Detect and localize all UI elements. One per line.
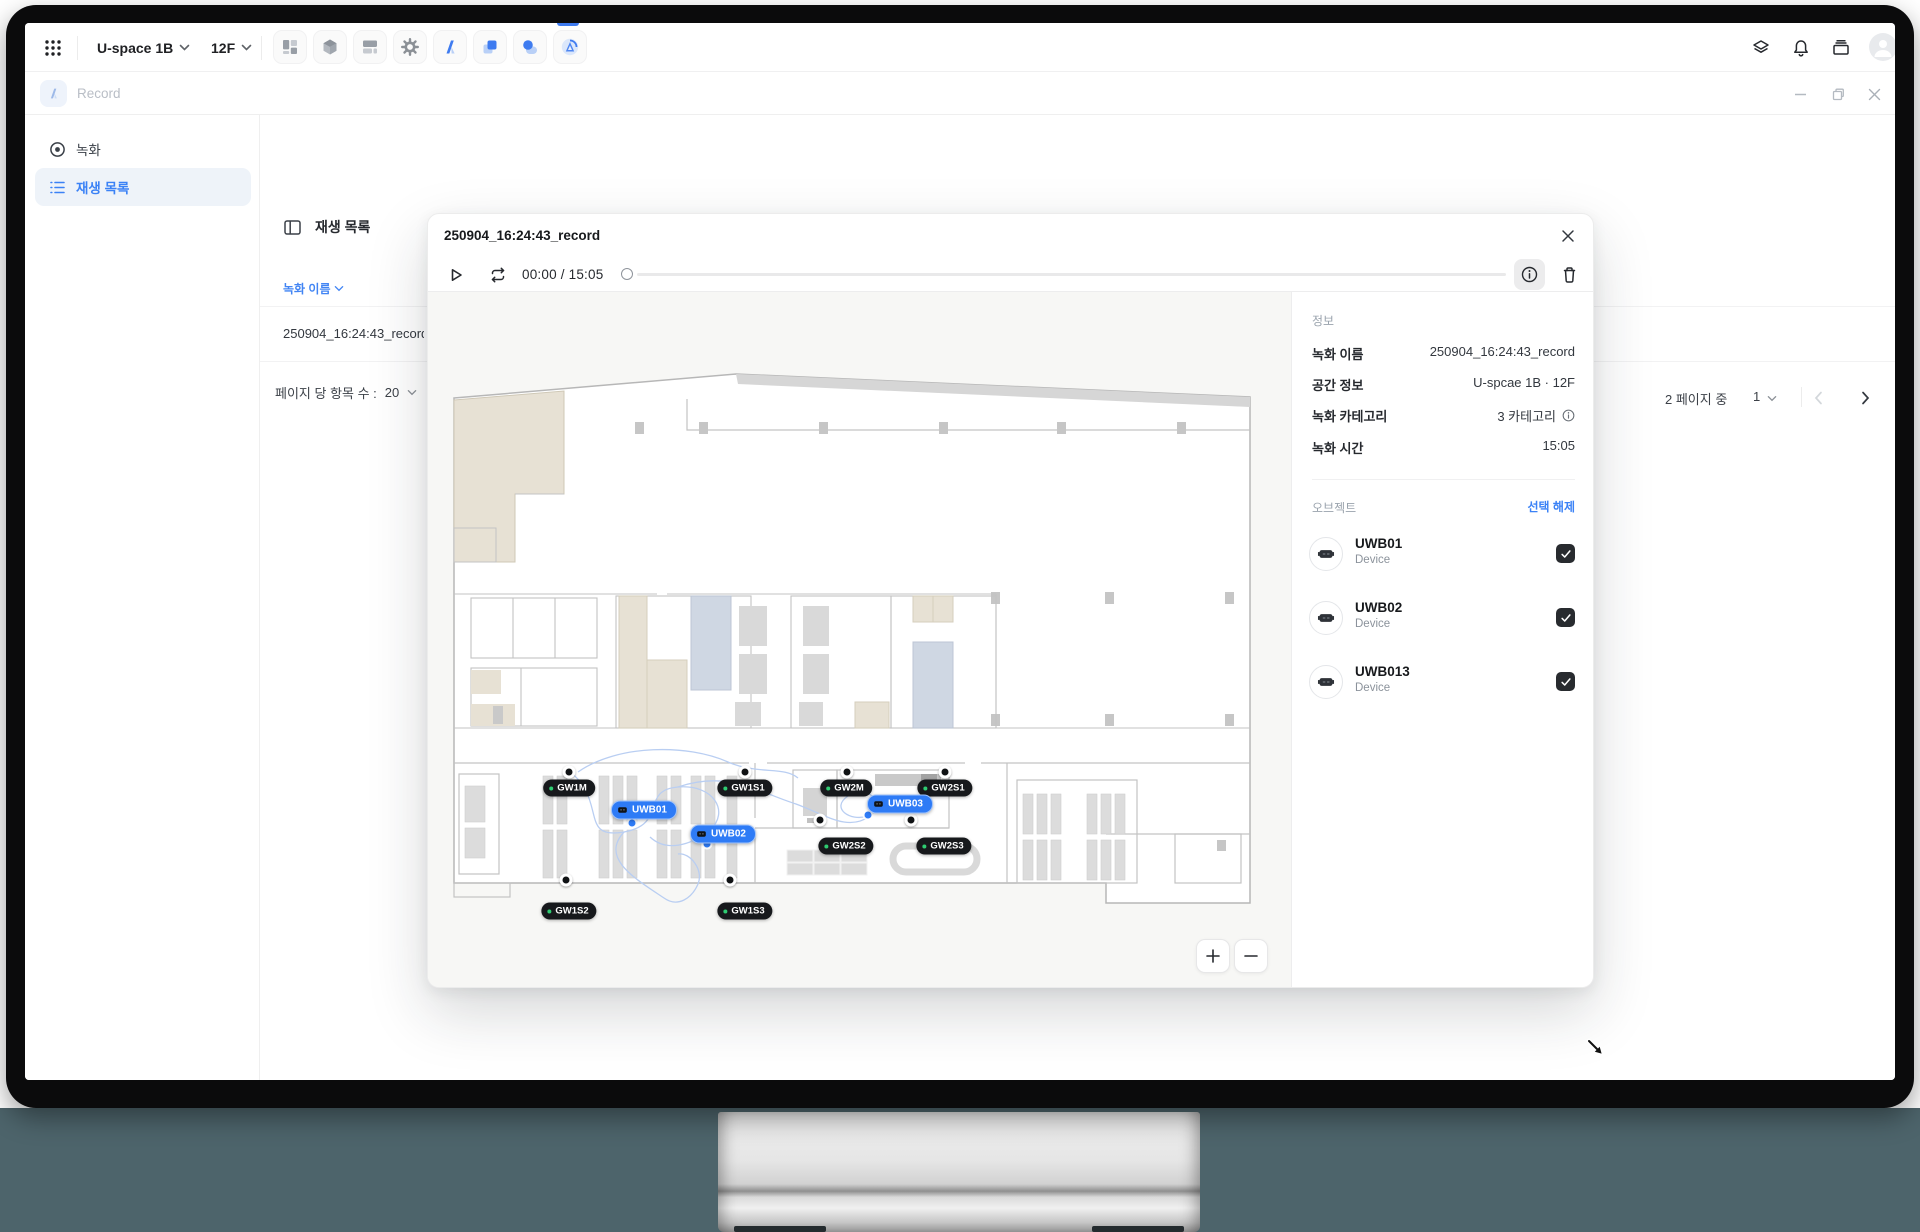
monitor-stand (718, 1112, 1200, 1232)
sidebar-item-record[interactable]: 녹화 (35, 130, 251, 168)
minimize-button[interactable] (1787, 81, 1813, 107)
gateway-name: GW2S1 (931, 783, 964, 794)
info-label: 녹화 이름 (1312, 344, 1363, 363)
user-avatar[interactable] (1869, 33, 1895, 61)
gateway-name: GW2M (834, 783, 864, 794)
uwb-device-icon (1315, 607, 1337, 629)
info-value: 3 카테고리 (1497, 406, 1575, 425)
tag-position-dot (865, 812, 872, 819)
divider (77, 36, 78, 60)
status-dot (824, 844, 828, 848)
anchor-dot (560, 874, 573, 887)
check-icon (1560, 612, 1572, 624)
a-logo-icon (46, 86, 61, 101)
uwb-tag-label[interactable]: UWB01 (611, 801, 677, 820)
panels-tool-button[interactable] (353, 30, 387, 64)
objects-section-label: 오브젝트 (1312, 499, 1356, 516)
sidebar-item-playlist[interactable]: 재생 목록 (35, 168, 251, 206)
gateway-name: GW2S2 (832, 841, 865, 852)
restore-button[interactable] (1825, 81, 1851, 107)
tag-name: UWB02 (711, 829, 746, 840)
repeat-icon (489, 267, 507, 283)
close-icon (1868, 88, 1881, 101)
bell-icon (1791, 38, 1811, 58)
status-dot (547, 909, 551, 913)
device-name: UWB02 (1355, 600, 1402, 615)
monitor-bezel: U-space 1B 12F (6, 5, 1914, 1108)
space-name: U-space 1B (97, 40, 173, 56)
clear-selection-link[interactable]: 선택 해제 (1528, 498, 1576, 515)
gear-icon (400, 37, 420, 57)
panel-toggle-icon[interactable] (283, 218, 302, 237)
device-row[interactable]: UWB02Device (1309, 599, 1578, 637)
device-avatar (1309, 537, 1343, 571)
gateway-label[interactable]: GW1S3 (717, 903, 772, 920)
chevron-right-icon (1861, 391, 1870, 405)
gateway-name: GW2S3 (930, 841, 963, 852)
minimize-icon (1794, 88, 1807, 101)
tag-name: UWB03 (888, 799, 923, 810)
anchor-dot (905, 814, 918, 827)
info-row: 녹화 카테고리3 카테고리 (1312, 406, 1575, 424)
anchor-dot (739, 766, 752, 779)
divider (1312, 479, 1575, 480)
panels-icon (360, 37, 380, 57)
trash-icon (1561, 266, 1578, 284)
tag-name: UWB01 (632, 805, 667, 816)
window-title: Record (77, 72, 121, 115)
play-button[interactable] (442, 261, 469, 288)
divider (1801, 387, 1802, 407)
uwb-device-icon (696, 829, 707, 840)
record-icon (49, 141, 66, 158)
chevron-down-icon (241, 44, 252, 51)
window-title-bar: Record (25, 72, 1895, 115)
compass-tool-button[interactable] (553, 30, 587, 64)
status-dot (826, 786, 830, 790)
seek-track[interactable] (637, 273, 1506, 276)
info-label: 녹화 카테고리 (1312, 406, 1387, 425)
column-header[interactable]: 녹화 이름 (283, 280, 344, 297)
delete-button[interactable] (1556, 261, 1583, 288)
check-icon (1560, 548, 1572, 560)
wallet-button[interactable] (1828, 35, 1854, 61)
uwb-tag-label[interactable]: UWB03 (867, 795, 933, 814)
grid-icon (44, 39, 62, 57)
plus-icon (1206, 949, 1220, 963)
device-row[interactable]: UWB013Device (1309, 663, 1578, 701)
layers-tool-button[interactable] (473, 30, 507, 64)
info-icon (1521, 266, 1538, 283)
close-window-button[interactable] (1861, 81, 1887, 107)
device-name: UWB01 (1355, 536, 1402, 551)
anchor-dot (724, 874, 737, 887)
screen: U-space 1B 12F (25, 23, 1895, 1080)
wallet-icon (1831, 38, 1851, 58)
floor-name: 12F (211, 40, 235, 56)
circle-shape-icon (520, 37, 540, 57)
restore-icon (1832, 88, 1845, 101)
minus-icon (1244, 949, 1258, 963)
info-value: 250904_16:24:43_record (1430, 344, 1575, 359)
compass-a-icon (559, 36, 581, 58)
uwb-device-icon (617, 805, 628, 816)
gateway-label[interactable]: GW2S2 (818, 838, 873, 855)
close-icon (1561, 229, 1575, 243)
record-name-cell: 250904_16:24:43_record (283, 326, 424, 341)
device-avatar (1309, 665, 1343, 699)
gateway-label[interactable]: GW2S3 (916, 838, 971, 855)
info-value: 15:05 (1542, 438, 1575, 453)
player-bar: 00:00 / 15:05 (428, 256, 1593, 292)
page-total-label: 2 페이지 중 (1665, 389, 1727, 408)
info-value: U-spcae 1B · 12F (1473, 375, 1575, 390)
dialog-body: GW1MGW1S1GW2MGW2S1GW2S2GW2S3GW1S2GW1S3UW… (428, 292, 1593, 988)
status-dot (549, 786, 553, 790)
shapes-tool-button[interactable] (513, 30, 547, 64)
app-launcher-button[interactable] (40, 35, 66, 61)
status-dot (723, 909, 727, 913)
check-icon (1560, 676, 1572, 688)
dialog-title: 250904_16:24:43_record (428, 214, 1593, 256)
status-dot (922, 844, 926, 848)
device-type: Device (1355, 618, 1390, 630)
uwb-device-icon (873, 799, 884, 810)
uwb-device-icon (1315, 671, 1337, 693)
uwb-device-icon (1315, 543, 1337, 565)
settings-tool-button[interactable] (393, 30, 427, 64)
overlap-squares-icon (480, 37, 500, 57)
device-row[interactable]: UWB01Device (1309, 535, 1578, 573)
anchor-dot (939, 766, 952, 779)
info-row: 녹화 시간15:05 (1312, 438, 1575, 456)
seek-thumb[interactable] (621, 268, 633, 280)
device-checkbox[interactable] (1556, 544, 1575, 563)
device-name: UWB013 (1355, 664, 1410, 679)
play-icon (448, 267, 464, 283)
gateway-label[interactable]: GW1S1 (717, 780, 772, 797)
layers-icon (1751, 38, 1771, 58)
record-app-icon (40, 80, 67, 107)
cube-tool-button[interactable] (313, 30, 347, 64)
floorplan-drawing (451, 366, 1261, 941)
gateway-label[interactable]: GW2M (820, 780, 872, 797)
gateway-label[interactable]: GW1M (543, 780, 595, 797)
floorplan-viewport[interactable]: GW1MGW1S1GW2MGW2S1GW2S2GW2S3GW1S2GW1S3UW… (428, 292, 1291, 988)
sidebar-item-label: 재생 목록 (76, 177, 129, 197)
info-section-label: 정보 (1312, 312, 1334, 329)
page-title: 재생 목록 (315, 217, 370, 237)
info-toggle-button[interactable] (1514, 259, 1545, 290)
active-tool-indicator (557, 23, 579, 26)
info-icon[interactable] (1562, 409, 1575, 422)
info-label: 공간 정보 (1312, 375, 1363, 394)
info-panel: 정보 녹화 이름250904_16:24:43_record공간 정보U-spc… (1291, 292, 1594, 988)
chevron-down-icon (179, 44, 190, 51)
stand-foot-left (734, 1226, 826, 1232)
playlist-icon (49, 179, 66, 196)
person-icon (1869, 33, 1895, 61)
info-label: 녹화 시간 (1312, 438, 1363, 457)
gateway-name: GW1M (557, 783, 587, 794)
status-dot (923, 786, 927, 790)
divider (261, 36, 262, 60)
status-dot (723, 786, 727, 790)
tag-position-dot (629, 820, 636, 827)
zoom-in-button[interactable] (1196, 939, 1230, 973)
chevron-down-icon (334, 285, 344, 292)
gateway-name: GW1S1 (731, 783, 764, 794)
zoom-out-button[interactable] (1234, 939, 1268, 973)
close-dialog-button[interactable] (1554, 222, 1581, 249)
gateway-name: GW1S3 (731, 906, 764, 917)
sidebar: 녹화 재생 목록 (25, 115, 260, 1080)
space-selector[interactable]: U-space 1B (97, 23, 190, 72)
layout-icon (280, 37, 300, 57)
gateway-name: GW1S2 (555, 906, 588, 917)
layers-button[interactable] (1748, 35, 1774, 61)
anchor-dot (814, 814, 827, 827)
stand-foot-right (1092, 1226, 1184, 1232)
uwb-tag-label[interactable]: UWB02 (690, 825, 756, 844)
top-app-bar: U-space 1B 12F (25, 23, 1895, 72)
device-type: Device (1355, 682, 1390, 694)
prev-page-button[interactable] (1805, 385, 1831, 411)
sidebar-item-label: 녹화 (76, 139, 101, 159)
cube-3d-icon (320, 37, 340, 57)
current-page-selector[interactable]: 1 (1753, 389, 1760, 404)
a-logo-icon (440, 37, 460, 57)
device-type: Device (1355, 554, 1390, 566)
record-player-dialog: 250904_16:24:43_record 00:00 / 15:05 (427, 213, 1594, 988)
device-avatar (1309, 601, 1343, 635)
floor-selector[interactable]: 12F (211, 23, 252, 72)
gateway-label[interactable]: GW1S2 (541, 903, 596, 920)
next-page-button[interactable] (1852, 385, 1878, 411)
a-logo-tool-button[interactable] (433, 30, 467, 64)
layout-tool-button[interactable] (273, 30, 307, 64)
device-checkbox[interactable] (1556, 608, 1575, 627)
time-display: 00:00 / 15:05 (522, 256, 603, 292)
device-checkbox[interactable] (1556, 672, 1575, 691)
scene: U-space 1B 12F (0, 0, 1920, 1232)
repeat-button[interactable] (484, 261, 511, 288)
info-row: 녹화 이름250904_16:24:43_record (1312, 344, 1575, 362)
anchor-dot (841, 766, 854, 779)
chevron-down-icon[interactable] (1767, 395, 1777, 402)
notifications-button[interactable] (1788, 35, 1814, 61)
info-row: 공간 정보U-spcae 1B · 12F (1312, 375, 1575, 393)
anchor-dot (563, 766, 576, 779)
chevron-left-icon (1814, 391, 1823, 405)
